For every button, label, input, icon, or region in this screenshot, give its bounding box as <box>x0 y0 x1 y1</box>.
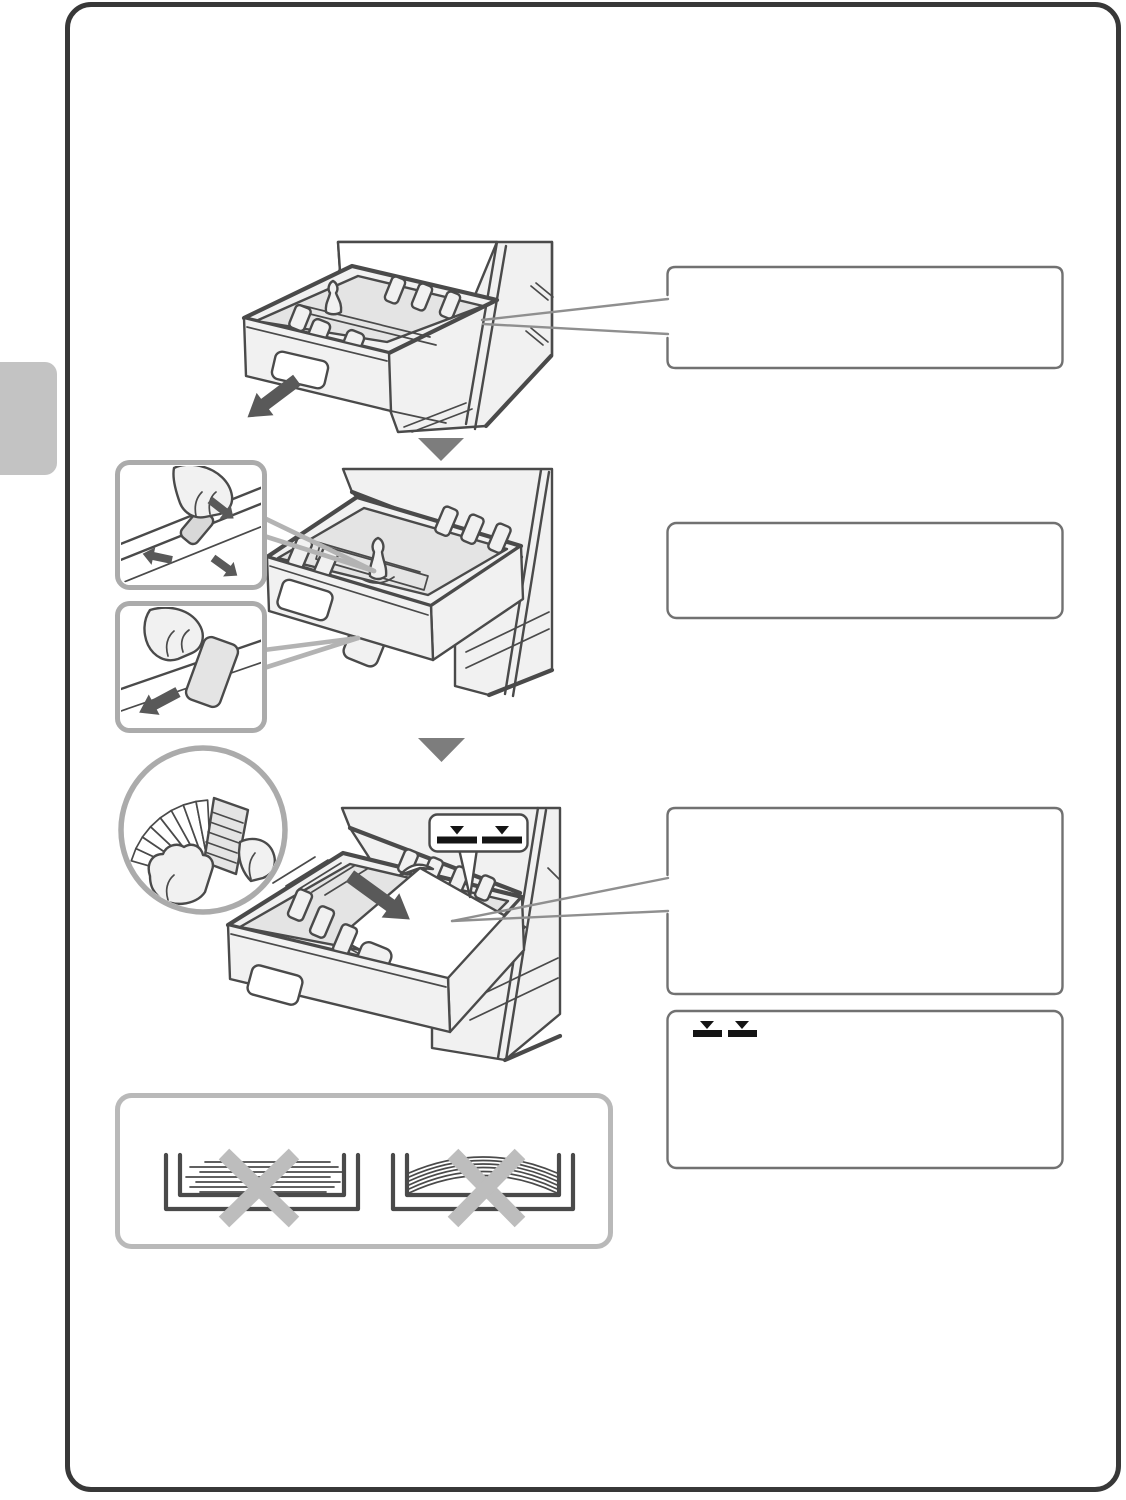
inset-adjust-front-guide <box>118 604 265 731</box>
step2-callout-text <box>667 523 1062 618</box>
step-separator-triangle-2 <box>418 738 465 762</box>
note-callout-text <box>667 1040 1062 1168</box>
step2-illustration <box>118 463 553 731</box>
dont-box <box>118 1096 611 1247</box>
step1-callout-text <box>667 267 1062 368</box>
inset-fan-paper-circle <box>121 748 285 912</box>
step1-illustration <box>239 242 553 432</box>
step3-illustration <box>121 748 560 1060</box>
step-separator-triangle-1 <box>418 438 464 461</box>
step3-callout-text <box>667 808 1062 994</box>
manual-page <box>0 0 1126 1500</box>
hand <box>149 845 213 904</box>
inset-adjust-side-guide <box>118 463 265 588</box>
illustration-canvas <box>0 0 1126 1500</box>
